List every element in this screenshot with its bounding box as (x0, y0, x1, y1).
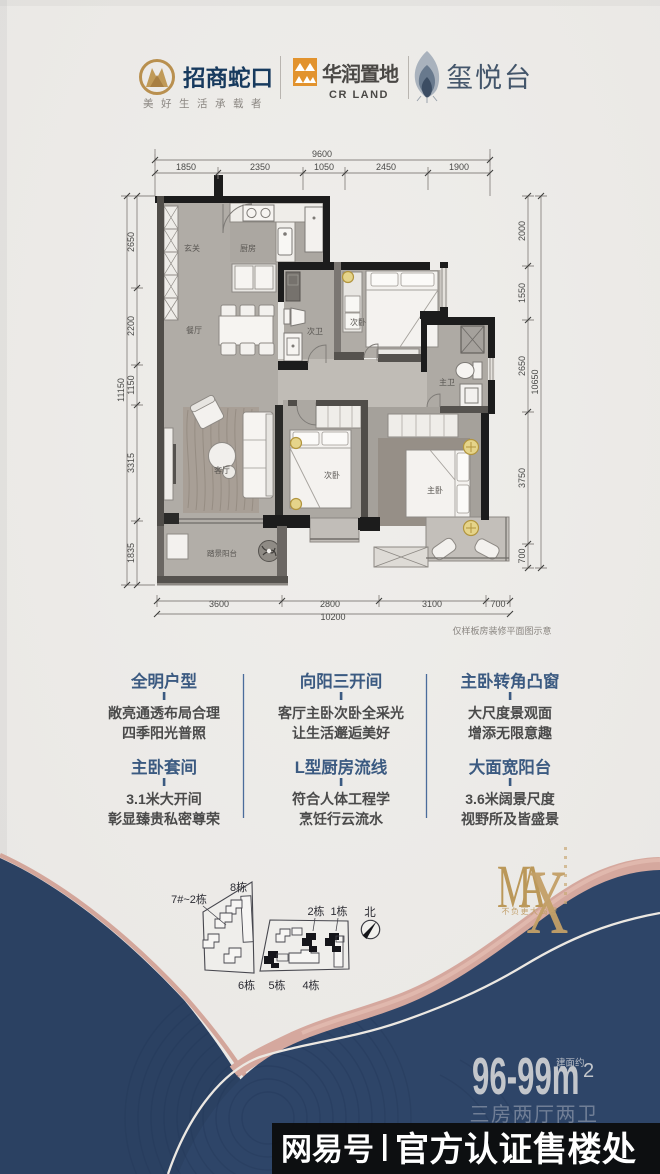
svg-text:视野所及皆盛景: 视野所及皆盛景 (461, 811, 559, 827)
svg-text:大面宽阳台: 大面宽阳台 (469, 757, 552, 777)
svg-text:700: 700 (517, 548, 527, 563)
svg-text:主卧转角凸窗: 主卧转角凸窗 (461, 671, 560, 691)
svg-text:仅样板房装修平面图示意: 仅样板房装修平面图示意 (452, 625, 551, 636)
svg-text:CR LAND: CR LAND (329, 89, 389, 101)
svg-text:不负更大渴望: 不负更大渴望 (502, 906, 559, 916)
svg-text:官方认证售楼处: 官方认证售楼处 (395, 1131, 637, 1169)
svg-text:玺悦台: 玺悦台 (446, 63, 533, 93)
svg-text:3600: 3600 (209, 599, 229, 609)
svg-text:1栋: 1栋 (330, 904, 347, 918)
svg-text:2650: 2650 (126, 232, 136, 252)
svg-text:3315: 3315 (126, 453, 136, 473)
svg-text:3.6米阔景尺度: 3.6米阔景尺度 (465, 791, 555, 807)
svg-text:招商蛇口: 招商蛇口 (183, 65, 273, 91)
svg-text:8栋: 8栋 (230, 880, 247, 894)
svg-text:3750: 3750 (517, 468, 527, 488)
svg-text:次卫: 次卫 (307, 326, 323, 336)
svg-text:2200: 2200 (126, 316, 136, 336)
svg-text:餐厅: 餐厅 (186, 326, 202, 335)
svg-text:主卧: 主卧 (427, 485, 443, 495)
svg-text:2: 2 (583, 1060, 594, 1082)
svg-text:向阳三开间: 向阳三开间 (300, 671, 383, 691)
svg-text:2650: 2650 (517, 356, 527, 376)
svg-text:6栋: 6栋 (238, 978, 255, 992)
svg-text:1900: 1900 (449, 162, 469, 172)
svg-text:踏景阳台: 踏景阳台 (207, 548, 237, 558)
svg-text:7#~2栋: 7#~2栋 (171, 892, 207, 906)
svg-text:玄关: 玄关 (184, 243, 200, 253)
svg-text:3100: 3100 (422, 599, 442, 609)
svg-text:大尺度景观面: 大尺度景观面 (468, 705, 552, 721)
svg-text:主卧套间: 主卧套间 (131, 757, 197, 777)
svg-text:700: 700 (490, 599, 505, 609)
svg-text:符合人体工程学: 符合人体工程学 (291, 791, 390, 807)
svg-text:2450: 2450 (376, 162, 396, 172)
svg-text:1050: 1050 (314, 162, 334, 172)
svg-text:厨房: 厨房 (240, 243, 256, 253)
svg-text:1550: 1550 (517, 283, 527, 303)
svg-text:2350: 2350 (250, 162, 270, 172)
svg-text:美好生活承载者: 美好生活承载者 (143, 97, 269, 110)
svg-text:5栋: 5栋 (268, 978, 285, 992)
svg-text:彰显臻贵私密尊荣: 彰显臻贵私密尊荣 (108, 811, 221, 827)
svg-text:2800: 2800 (320, 599, 340, 609)
svg-text:华润置地: 华润置地 (322, 62, 399, 86)
svg-text:次卧: 次卧 (350, 317, 366, 327)
svg-text:10200: 10200 (320, 612, 345, 622)
svg-text:9600: 9600 (312, 149, 332, 159)
svg-text:敞亮通透布局合理: 敞亮通透布局合理 (108, 705, 220, 721)
svg-text:客厅: 客厅 (214, 465, 230, 475)
svg-text:2000: 2000 (517, 221, 527, 241)
svg-text:增添无限意趣: 增添无限意趣 (468, 725, 553, 741)
svg-text:2栋: 2栋 (307, 904, 324, 918)
svg-text:网易号: 网易号 (281, 1132, 374, 1167)
svg-text:10650: 10650 (530, 369, 540, 394)
svg-text:11150: 11150 (116, 378, 126, 402)
svg-text:全明户型: 全明户型 (130, 671, 198, 691)
svg-text:1150: 1150 (126, 375, 136, 394)
svg-text:4栋: 4栋 (302, 978, 319, 992)
svg-text:1850: 1850 (176, 162, 196, 172)
svg-text:次卧: 次卧 (324, 470, 340, 480)
svg-text:建面约: 建面约 (556, 1057, 585, 1069)
svg-text:让生活邂逅美好: 让生活邂逅美好 (292, 725, 390, 741)
svg-text:1835: 1835 (126, 543, 136, 563)
svg-text:3.1米大开间: 3.1米大开间 (126, 791, 201, 807)
svg-text:烹饪行云流水: 烹饪行云流水 (299, 811, 384, 827)
svg-text:客厅主卧次卧全采光: 客厅主卧次卧全采光 (277, 705, 404, 721)
svg-text:主卫: 主卫 (439, 377, 455, 387)
svg-text:X: X (526, 851, 569, 953)
svg-text:三房两厅两卫: 三房两厅两卫 (470, 1103, 599, 1126)
svg-text:96-99m: 96-99m (472, 1048, 580, 1106)
svg-text:北: 北 (364, 906, 376, 919)
svg-text:L型厨房流线: L型厨房流线 (295, 757, 388, 777)
svg-text:四季阳光普照: 四季阳光普照 (122, 725, 206, 741)
